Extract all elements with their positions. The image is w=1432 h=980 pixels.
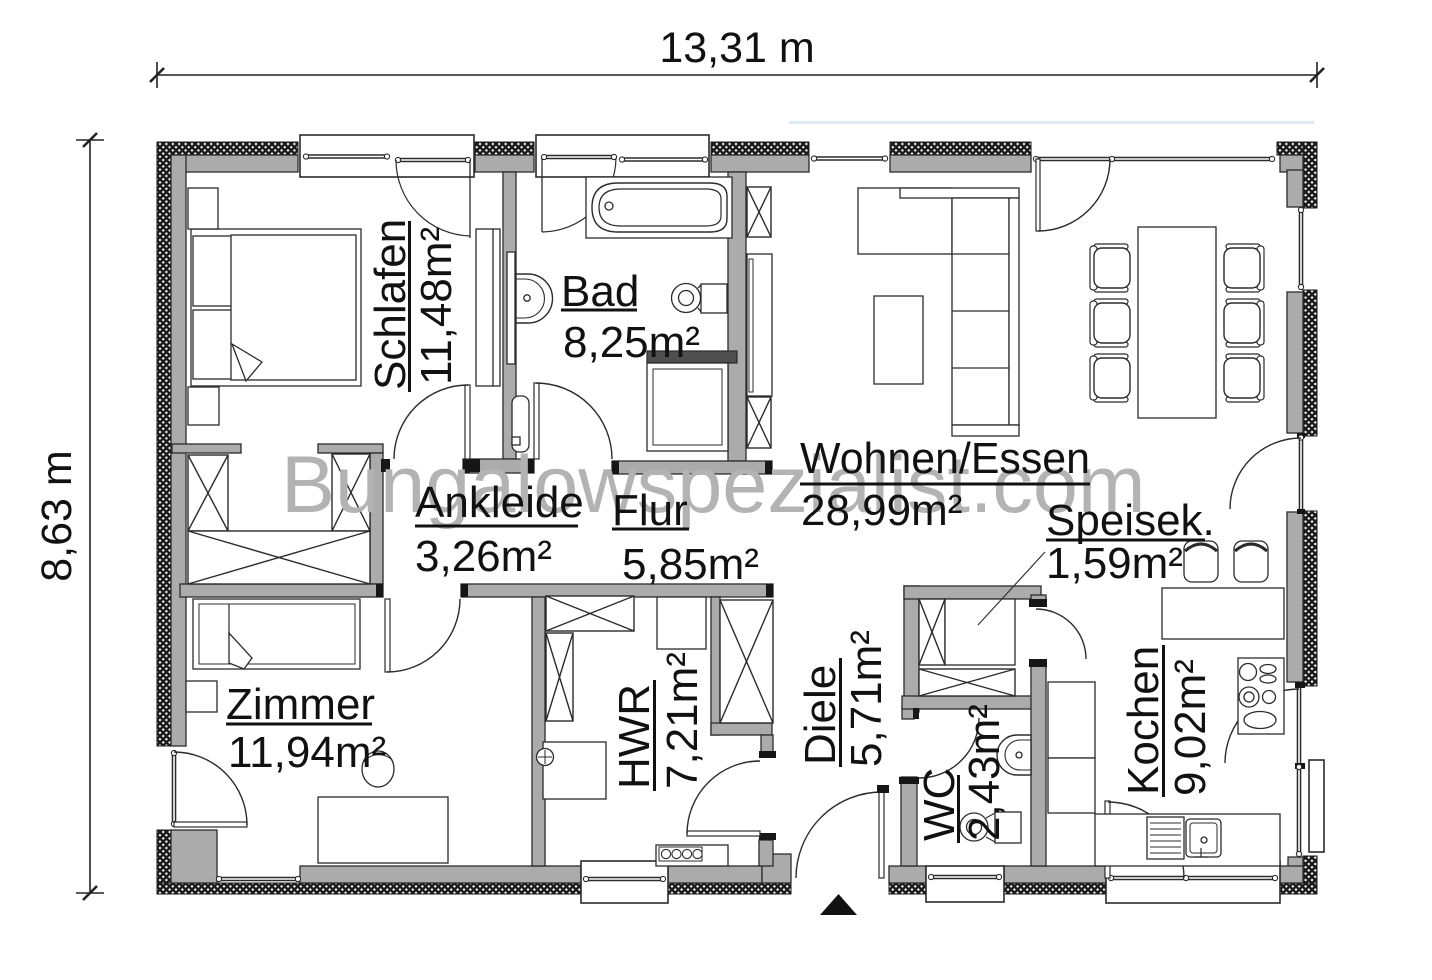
svg-text:8,63 m: 8,63 m bbox=[33, 450, 81, 581]
svg-text:28,99m²: 28,99m² bbox=[801, 486, 962, 535]
svg-text:5,71m²: 5,71m² bbox=[842, 630, 891, 767]
svg-text:11,94m²: 11,94m² bbox=[228, 728, 386, 777]
svg-text:Ankleide: Ankleide bbox=[415, 478, 584, 527]
svg-text:3,26m²: 3,26m² bbox=[415, 532, 552, 581]
svg-text:Schlafen: Schlafen bbox=[366, 219, 415, 390]
svg-text:Wohnen/Essen: Wohnen/Essen bbox=[800, 434, 1090, 483]
svg-text:5,85m²: 5,85m² bbox=[622, 540, 759, 589]
svg-text:Speisek.: Speisek. bbox=[1046, 496, 1215, 545]
svg-text:8,25m²: 8,25m² bbox=[563, 318, 700, 367]
svg-text:Diele: Diele bbox=[796, 665, 845, 765]
svg-text:13,31 m: 13,31 m bbox=[659, 24, 814, 72]
svg-text:7,21m²: 7,21m² bbox=[658, 652, 707, 789]
svg-text:9,02m²: 9,02m² bbox=[1166, 659, 1215, 796]
svg-text:WC: WC bbox=[915, 768, 964, 841]
svg-text:HWR: HWR bbox=[610, 684, 659, 789]
svg-text:2,43m²: 2,43m² bbox=[960, 704, 1009, 841]
svg-text:Zimmer: Zimmer bbox=[226, 680, 375, 729]
svg-text:11,48m²: 11,48m² bbox=[412, 227, 461, 385]
svg-text:Kochen: Kochen bbox=[1119, 646, 1168, 795]
svg-text:1,59m²: 1,59m² bbox=[1046, 539, 1183, 588]
